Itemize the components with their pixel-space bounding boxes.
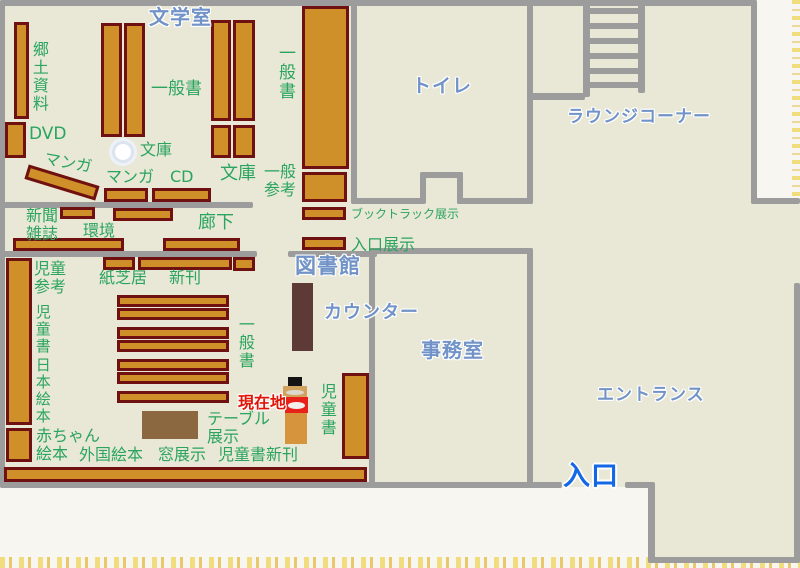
label-children-new-arrivals: 児童書新刊 (218, 446, 298, 464)
shelf-literature-a (101, 23, 122, 137)
marker-here-box (285, 397, 308, 413)
shelf-children-row-4 (117, 340, 229, 352)
shelf-general-b (233, 20, 255, 121)
shelf-manga (104, 188, 148, 202)
wall-bottom-entrance (650, 557, 800, 563)
shelf-corridor-2 (163, 238, 240, 251)
label-entrance-hall: エントランス (597, 386, 705, 405)
shelf-children-row-2 (117, 308, 229, 320)
shelf-bunko-b (233, 125, 255, 158)
shelf-newspaper (60, 207, 95, 219)
label-children-books-left: 児童書 (34, 304, 51, 355)
wall-bottom-door-segment (625, 482, 655, 488)
shelf-literature-b (124, 23, 145, 137)
shelf-cd (152, 188, 211, 202)
shelf-general-reference-upper (302, 6, 349, 169)
label-japanese-picture-books: 日本絵本 (34, 357, 51, 425)
label-environment: 環境 (83, 222, 115, 240)
shelf-baby-books (6, 428, 32, 462)
shelf-general-a (211, 20, 231, 121)
wall-toilet-left (351, 0, 357, 204)
display-table (142, 411, 198, 439)
shelf-children-left (6, 258, 32, 425)
label-kamishibai: 紙芝居 (99, 269, 147, 287)
wall-step (751, 198, 800, 204)
label-dvd: DVD (29, 125, 67, 144)
wall-left (0, 0, 5, 488)
shelf-children-row-5 (117, 359, 229, 371)
label-cd: CD (170, 168, 194, 186)
counter-desk (292, 283, 313, 351)
label-general-reference: 一般 参考 (264, 163, 296, 199)
label-newspaper-magazines: 新聞 雑誌 (26, 207, 58, 243)
label-library: 図書館 (295, 255, 361, 279)
wall-toilet-door-right (457, 172, 463, 204)
shelf-children-row-6 (117, 372, 229, 384)
label-toilet: トイレ (412, 76, 472, 97)
wall-office-right (527, 248, 533, 483)
wall-toilet-bottom-left (351, 198, 423, 204)
label-lounge-corner: ラウンジコーナー (567, 108, 711, 127)
shelf-children-row-7 (117, 391, 229, 403)
stair-rung-5 (583, 68, 645, 74)
label-foreign-picture-books: 外国絵本 (79, 446, 143, 464)
paper-edge-right-decoration (792, 0, 800, 206)
label-bunko-1: 文庫 (140, 141, 172, 159)
pillar (112, 141, 134, 163)
marker-base (285, 413, 307, 444)
shelf-booktruck-display (302, 207, 346, 220)
marker-upper-box-arc (286, 390, 303, 395)
marker-here-box-arc (288, 402, 305, 409)
label-table-display: テーブル 展示 (207, 410, 270, 446)
label-literature-room: 文学室 (149, 6, 212, 28)
label-window-display: 窓展示 (158, 446, 206, 464)
shelf-small-right (233, 257, 255, 271)
shelf-children-right (342, 373, 369, 459)
label-entrance-display: 入口展示 (351, 236, 415, 254)
label-manga: マンガ (106, 168, 154, 186)
label-bunko-2: 文庫 (220, 164, 256, 184)
shelf-entrance-display (302, 237, 346, 250)
wall-right-lower (794, 283, 800, 563)
label-local-history: 郷土資料 (30, 41, 48, 113)
wall-office-left (369, 248, 375, 483)
label-children-books-right: 児童書 (318, 383, 336, 437)
label-entrance: 入口 (563, 462, 619, 492)
shelf-window-display (4, 467, 367, 482)
marker-hat (288, 377, 302, 386)
label-corridor: 廊下 (198, 213, 234, 233)
wall-bottom-main (0, 482, 562, 488)
label-office: 事務室 (421, 339, 484, 361)
label-new-arrivals: 新刊 (169, 269, 201, 287)
wall-toilet-bottom-right (457, 198, 533, 204)
shelf-corridor-1 (113, 208, 173, 221)
wall-entrance-left (648, 483, 655, 563)
stair-rung-4 (583, 53, 645, 59)
label-general-books-1: 一般書 (151, 80, 202, 99)
shelf-children-row-1 (117, 295, 229, 307)
shelf-general-reference-lower (302, 172, 347, 202)
label-general-books-3: 一般書 (236, 316, 254, 370)
wall-right-upper (751, 0, 757, 204)
stair-rung-2 (583, 23, 645, 29)
floor-entrance-bottom (650, 483, 757, 557)
label-counter: カウンター (324, 303, 419, 323)
shelf-children-row-3 (117, 327, 229, 339)
wall-lounge-divider (527, 93, 585, 100)
stair-rung-1 (583, 8, 645, 14)
shelf-bunko-a (211, 125, 231, 158)
label-booktruck-display: ブックトラック展示 (351, 208, 459, 221)
stair-rung-6 (583, 82, 645, 88)
label-general-books-2: 一般書 (275, 44, 294, 101)
stair-rung-3 (583, 38, 645, 44)
label-children-reference: 児童 参考 (34, 260, 66, 296)
wall-toilet-right (527, 0, 533, 204)
shelf-dvd (5, 122, 26, 158)
shelf-local-history (14, 22, 29, 119)
library-floor-map: 文学室トイレラウンジコーナー図書館カウンター事務室エントランス入口現在地郷土資料… (0, 0, 800, 568)
